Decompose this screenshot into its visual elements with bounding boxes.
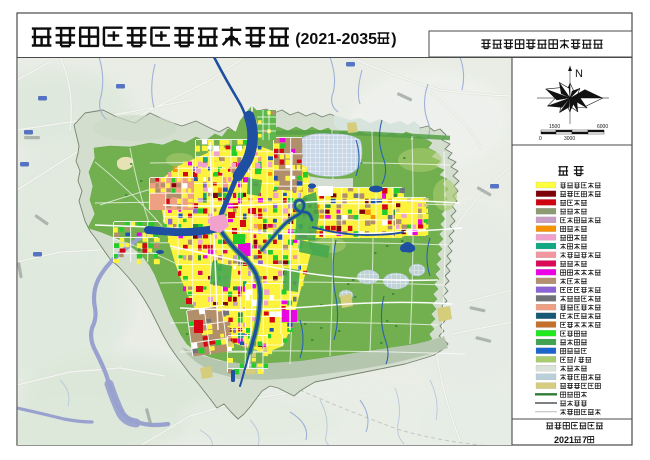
svg-text:N: N (575, 68, 583, 80)
svg-text:6000: 6000 (597, 124, 608, 130)
svg-text:1500: 1500 (549, 124, 560, 130)
svg-text:3000: 3000 (564, 136, 575, 142)
svg-text:7: 7 (582, 435, 587, 445)
svg-text:(2021-2035: (2021-2035 (295, 31, 377, 48)
svg-text:2021: 2021 (554, 435, 574, 445)
svg-text:): ) (391, 31, 396, 48)
svg-text:0: 0 (539, 136, 542, 142)
